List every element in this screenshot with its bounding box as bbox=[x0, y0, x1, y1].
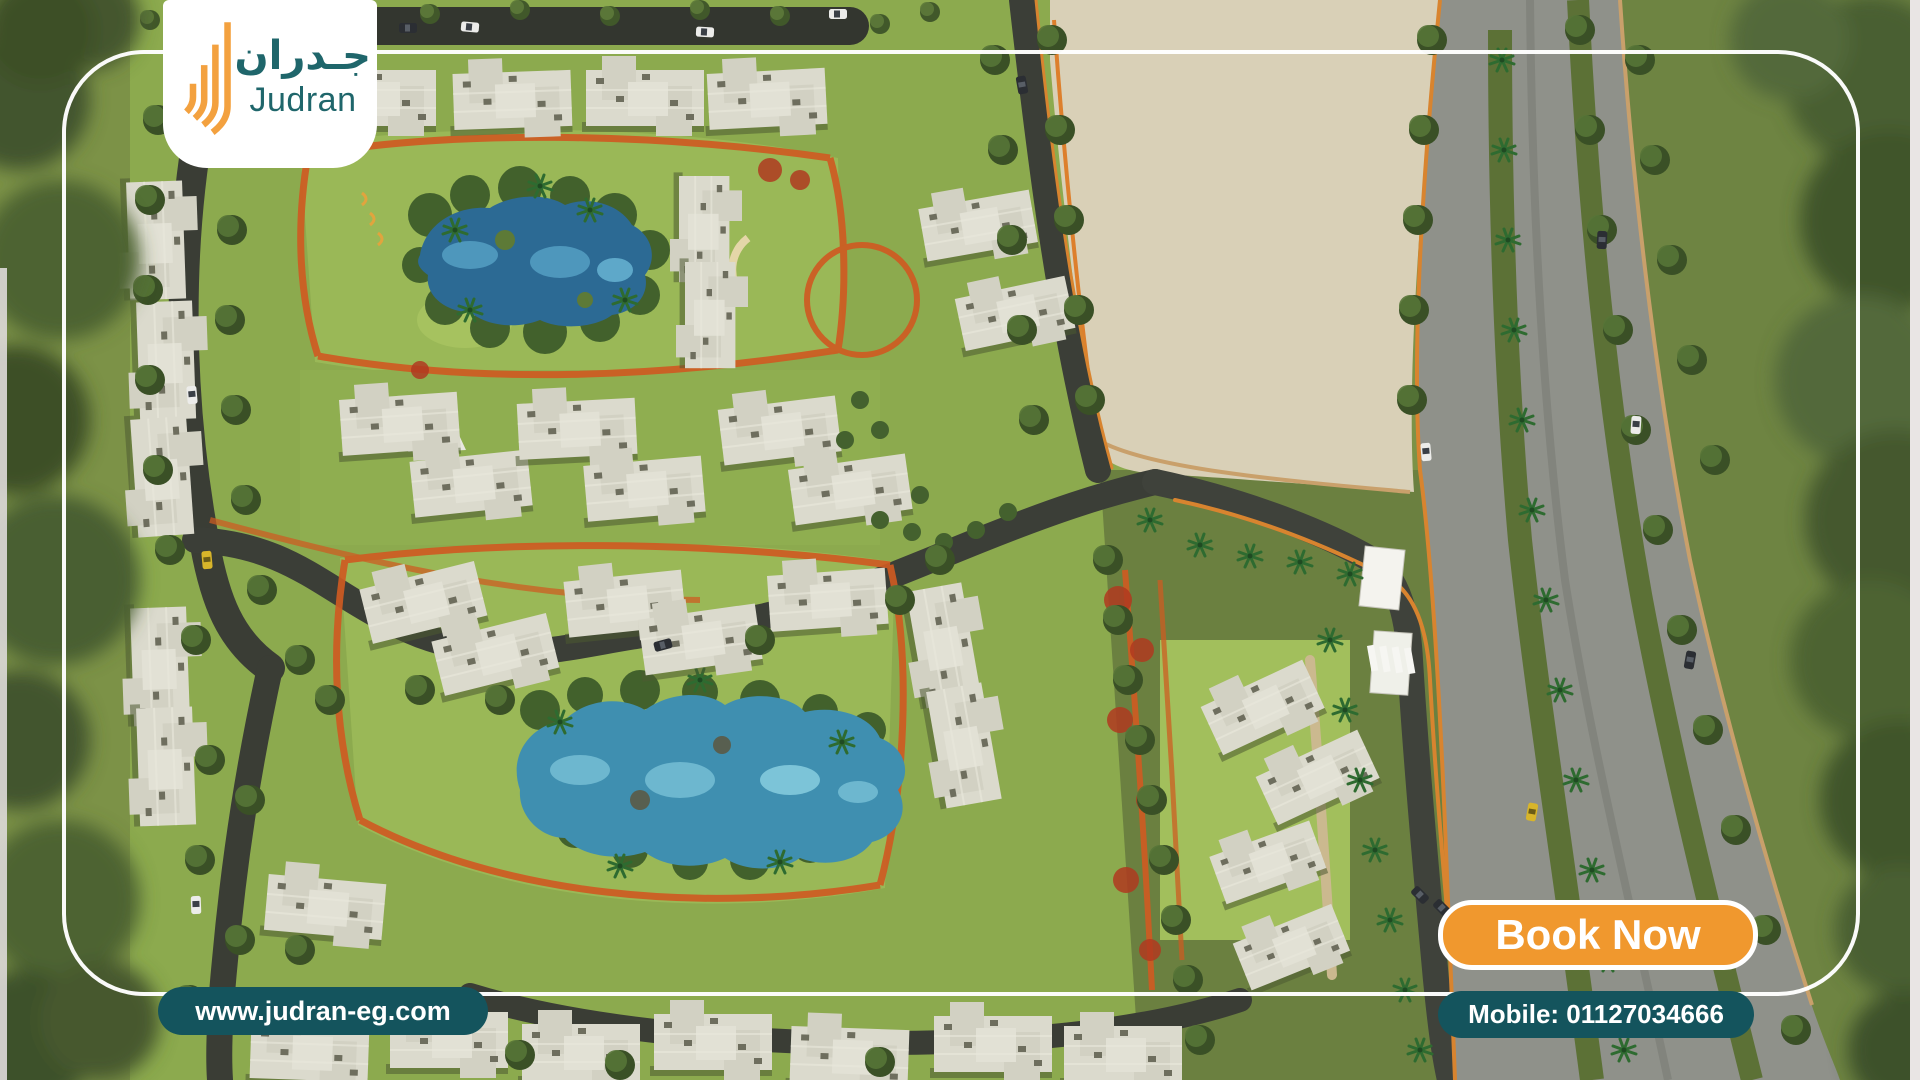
mobile-number[interactable]: Mobile: 01127034666 bbox=[1438, 991, 1754, 1038]
brand-name-latin: Judran bbox=[235, 82, 371, 118]
book-now-button[interactable]: Book Now bbox=[1438, 900, 1758, 970]
judran-bars-icon bbox=[179, 18, 235, 144]
right-edge-strip bbox=[1910, 0, 1920, 1080]
left-edge-strip bbox=[0, 268, 7, 1080]
brand-logo-text: جـدران Judran bbox=[235, 30, 371, 118]
ad-banner: جـدران Judran www.judran-eg.com Book Now… bbox=[0, 0, 1920, 1080]
sand-lot bbox=[1050, 0, 1440, 492]
brand-logo-card: جـدران Judran bbox=[163, 0, 377, 168]
brand-name-arabic: جـدران bbox=[235, 30, 371, 82]
website-link[interactable]: www.judran-eg.com bbox=[158, 987, 488, 1035]
